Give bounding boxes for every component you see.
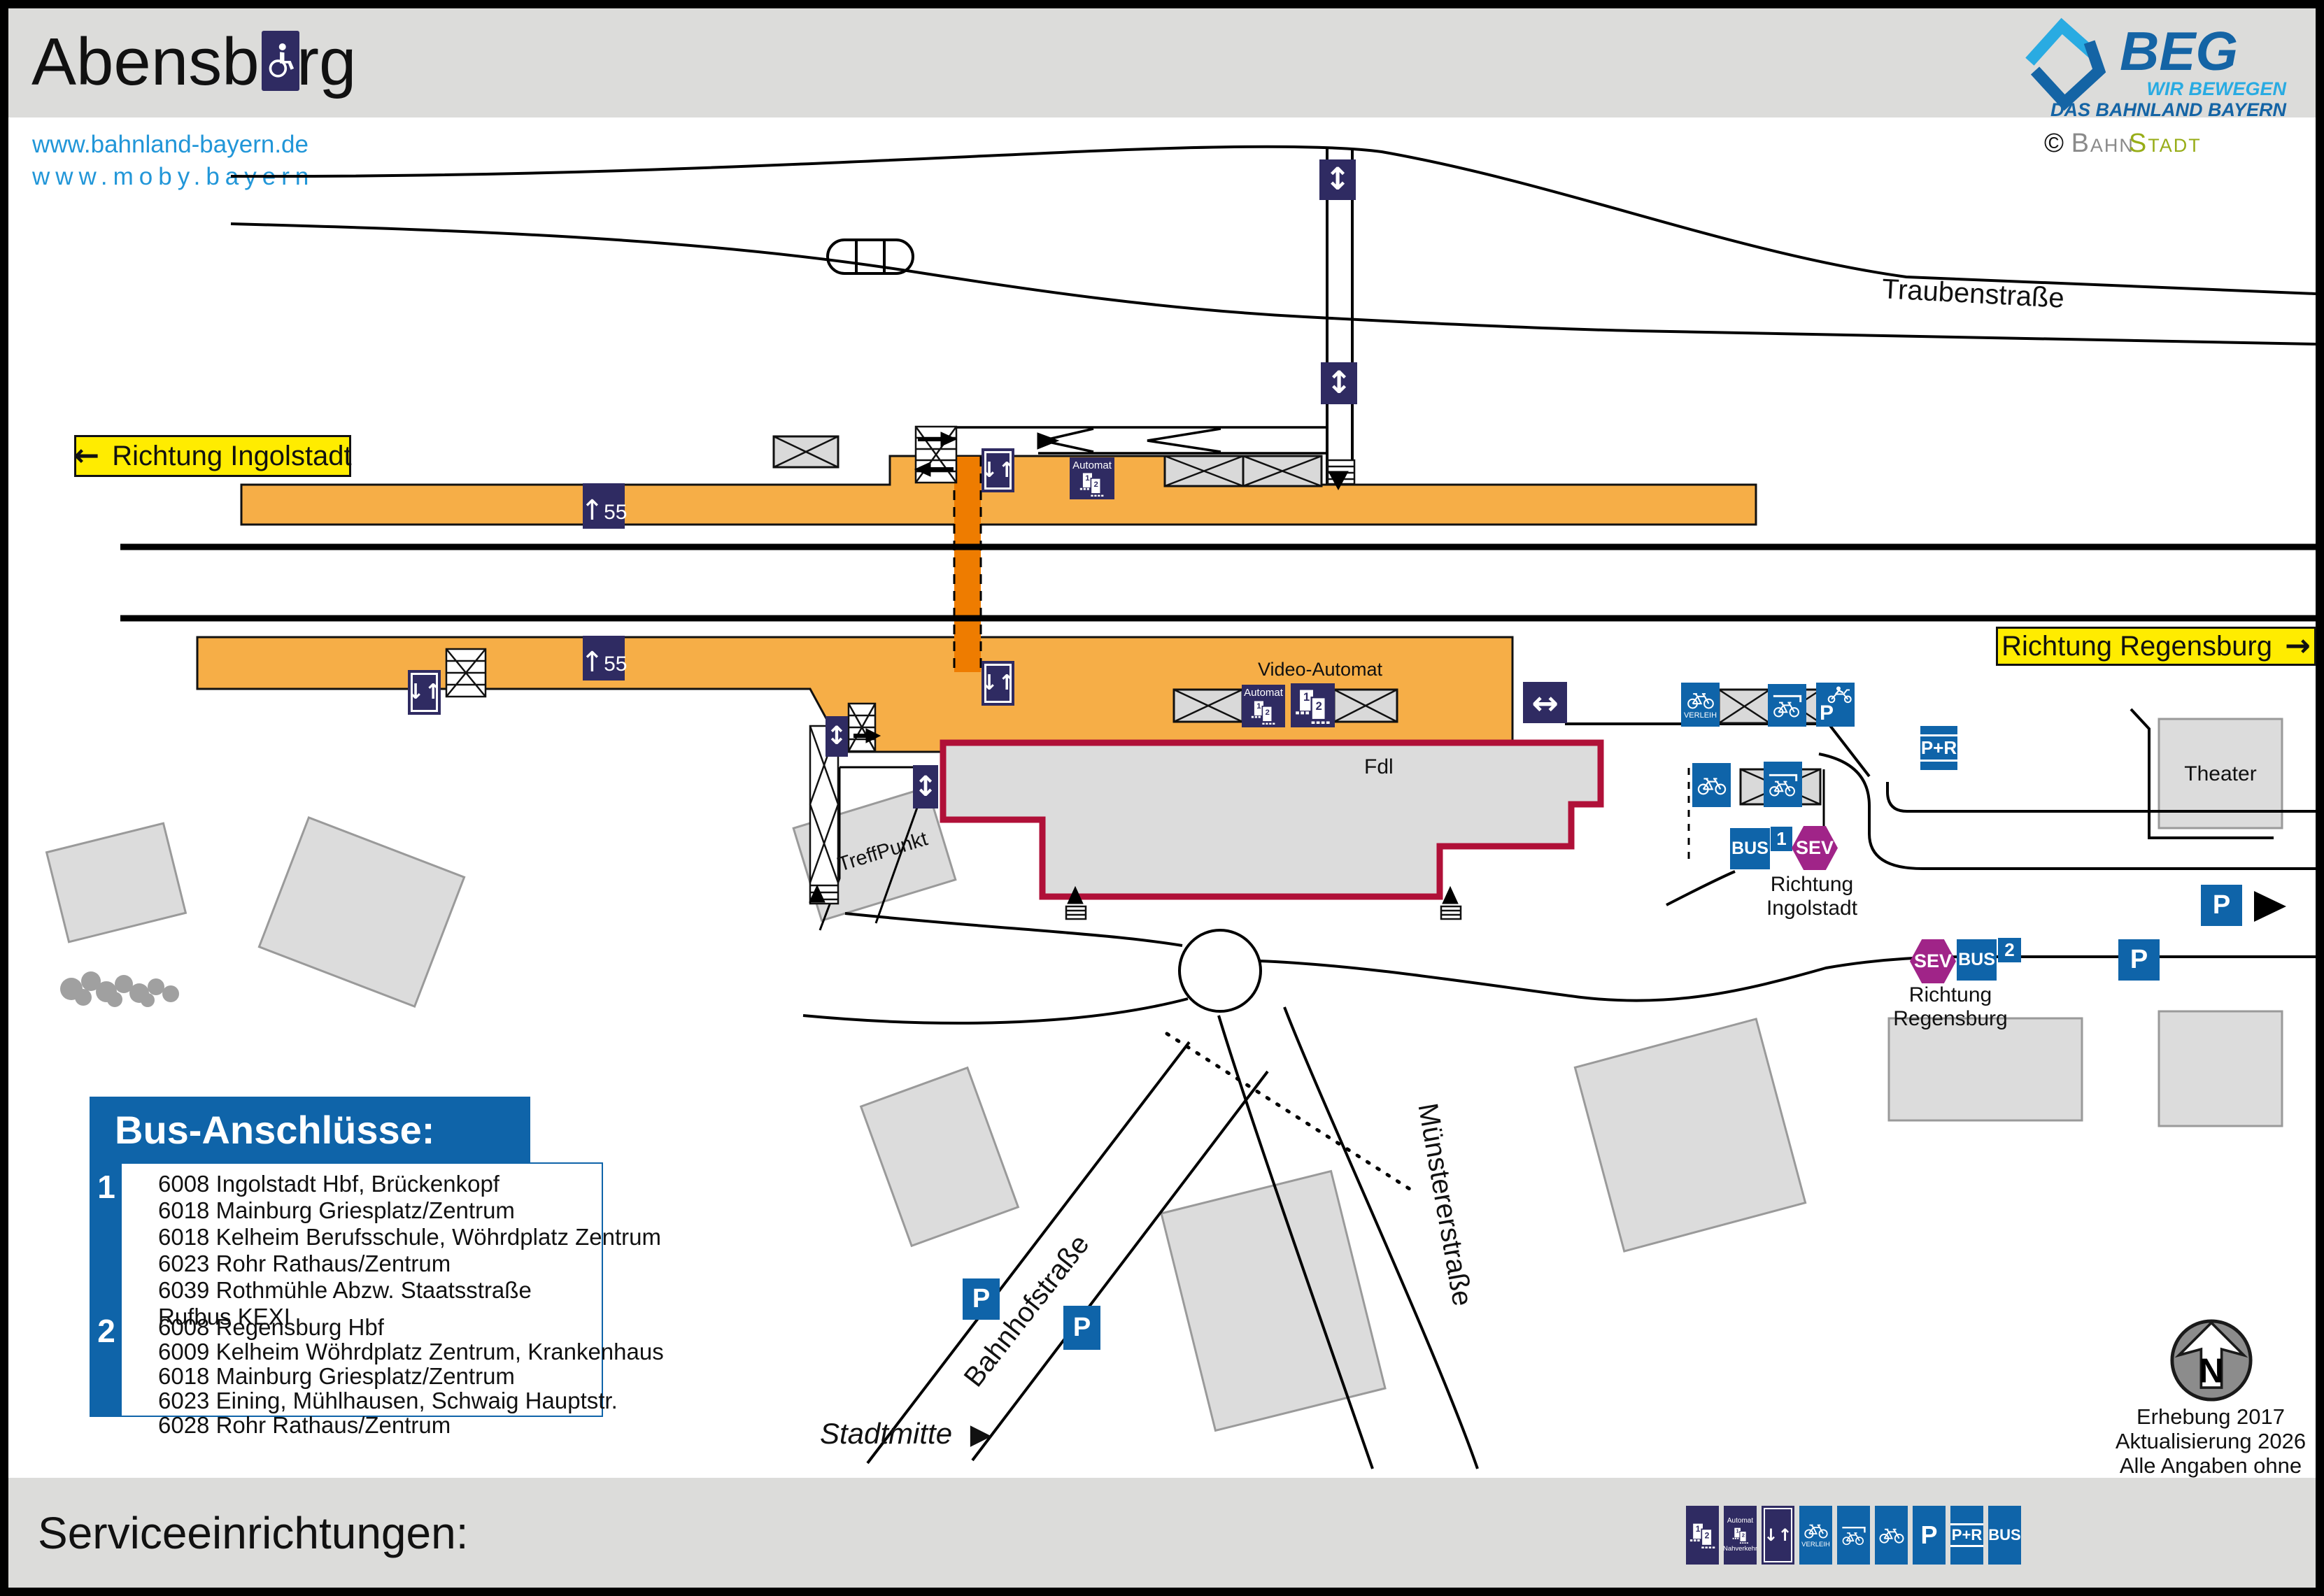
trees-icon	[60, 971, 179, 1007]
bus-line-item: 6028 Rohr Rathaus/Zentrum	[158, 1413, 664, 1437]
crossing-updown-icon: ↕	[1319, 159, 1356, 200]
p-label: P	[1820, 701, 1834, 725]
stop2-direction-label: RichtungRegensburg	[1887, 983, 2013, 1031]
covered-bike-parking-icon	[1768, 684, 1806, 727]
crossing-updown-icon: ↕	[913, 765, 938, 808]
bus-line-item: 6008 Ingolstadt Hbf, Brückenkopf	[158, 1171, 661, 1197]
parking-icon: P	[2118, 939, 2160, 981]
stadtmitte-arrow-icon: ▶	[970, 1418, 992, 1451]
stadtmitte-label: Stadtmitte ▶	[820, 1417, 992, 1451]
stop-number-2: 2	[1998, 938, 2021, 962]
crossing-updown-icon: ↕	[1321, 362, 1357, 404]
left-arrow-icon: ←	[73, 441, 99, 471]
direction-regensburg-text: Richtung Regensburg	[2001, 631, 2272, 662]
service-icons-row: Automat Nahverkehr ↓↑ VERLEIH P P+R BUS	[1686, 1506, 2021, 1565]
footer-band: Serviceeinrichtungen: Automat Nahverkehr…	[8, 1478, 2316, 1588]
bus-line-item: 6039 Rothmühle Abzw. Staatsstraße	[158, 1277, 661, 1304]
parking-icon: P	[1063, 1306, 1100, 1350]
theater-label: Theater	[2159, 762, 2282, 786]
up-arrow-icon: ↑	[581, 648, 604, 676]
elevator-icon: ↓↑	[408, 670, 441, 715]
bike-rental-icon: VERLEIH	[1799, 1506, 1832, 1565]
parking-icon: P	[2201, 885, 2242, 926]
table-stop1-number: 1	[91, 1168, 122, 1206]
platform-height-marker-1: ↑55	[583, 483, 625, 529]
note-erhebung: Erhebung 2017	[2085, 1404, 2324, 1429]
bus-line-item: 6018 Kelheim Berufsschule, Wöhrdplatz Ze…	[158, 1224, 661, 1251]
elevator-icon: ↓↑	[982, 448, 1014, 492]
video-ticket-machine-icon	[1686, 1506, 1719, 1565]
parking-icon: P	[963, 1278, 1000, 1320]
elevator-icon: ↓↑	[982, 661, 1014, 706]
underpass	[954, 457, 981, 672]
video-automat-label: Video-Automat	[1247, 659, 1394, 681]
fdl-label: Fdl	[1364, 755, 1448, 779]
bus-stop-icon: BUS	[1957, 939, 1997, 981]
map-canvas: Abensberg BEG WIR BEWEGEN DAS BAHNLAND B…	[8, 8, 2316, 1588]
bus-line-item: 6008 Regensburg Hbf	[158, 1315, 664, 1339]
bus-line-item: 6018 Mainburg Griesplatz/Zentrum	[158, 1364, 664, 1388]
covered-bike-parking-icon	[1764, 762, 1802, 807]
bus-stop-icon: BUS	[1730, 828, 1770, 869]
parking-direction-arrow-icon	[2254, 891, 2286, 922]
stop1-lines-list: 6008 Ingolstadt Hbf, Brückenkopf6018 Mai…	[158, 1171, 661, 1330]
stop2-lines-list: 6008 Regensburg Hbf6009 Kelheim Wöhrdpla…	[158, 1315, 664, 1437]
stop-number-1: 1	[1771, 827, 1792, 851]
bus-line-item: 6023 Rohr Rathaus/Zentrum	[158, 1251, 661, 1277]
platform-height-marker-2: ↑55	[583, 636, 625, 681]
bike-parking-icon	[1875, 1506, 1908, 1565]
park-and-ride-icon: P+R	[1950, 1506, 1983, 1565]
bus-connections-header: Bus-Anschlüsse:	[90, 1097, 530, 1162]
parking-icon: P	[1913, 1506, 1946, 1565]
automat-label: Automat	[1072, 460, 1112, 472]
ticket-machine-icon: Automat	[1070, 457, 1114, 499]
level-access-icon: ↔	[1523, 682, 1567, 723]
direction-ingolstadt-text: Richtung Ingolstadt	[112, 441, 351, 472]
bus-line-item: 6023 Eining, Mühlhausen, Schwaig Hauptst…	[158, 1388, 664, 1413]
up-arrow-icon: ↑	[581, 497, 604, 525]
pr-label: P+R	[1919, 734, 1959, 762]
pedestrian-dotted-path	[1167, 1034, 1410, 1189]
bus-line-item: 6009 Kelheim Wöhrdplatz Zentrum, Kranken…	[158, 1339, 664, 1364]
elevator-icon: ↓↑	[1762, 1506, 1794, 1565]
verleih-label: VERLEIH	[1684, 711, 1717, 720]
table-stop2-number: 2	[91, 1312, 122, 1350]
local-ticket-machine-icon: Automat Nahverkehr	[1724, 1506, 1757, 1565]
bike-rental-icon: VERLEIH	[1681, 683, 1720, 727]
right-arrow-icon: →	[2285, 631, 2311, 662]
covered-bike-parking-icon	[1837, 1506, 1870, 1565]
direction-label-ingolstadt: ← Richtung Ingolstadt	[74, 435, 351, 477]
video-ticket-machine-icon	[1291, 683, 1335, 727]
direction-label-regensburg: Richtung Regensburg →	[1996, 627, 2316, 666]
park-and-ride-icon: P+R	[1920, 726, 1957, 770]
automat-label: Automat	[1244, 687, 1283, 699]
stadtmitte-text: Stadtmitte	[820, 1417, 952, 1450]
compass-n: N	[2199, 1353, 2223, 1390]
platform-height-value: 55	[604, 653, 627, 676]
bus-stop-icon: BUS	[1988, 1506, 2021, 1565]
stop1-direction-label: RichtungIngolstadt	[1749, 873, 1875, 920]
station-map-page: Abensberg BEG WIR BEWEGEN DAS BAHNLAND B…	[0, 0, 2324, 1596]
note-aktualisierung: Aktualisierung 2026	[2085, 1429, 2324, 1453]
north-compass-icon: N	[2169, 1318, 2254, 1403]
bike-parking-icon	[1692, 763, 1731, 807]
motorcycle-parking-icon: P	[1816, 683, 1855, 727]
crossing-updown-icon: ↕	[826, 716, 848, 757]
bus-line-item: 6018 Mainburg Griesplatz/Zentrum	[158, 1197, 661, 1224]
platform-height-value: 55	[604, 501, 627, 525]
ticket-machine-icon: Automat	[1242, 685, 1285, 727]
fdl-building	[943, 743, 1601, 897]
bus-connections-table: 1 2 6008 Ingolstadt Hbf, Brückenkopf6018…	[90, 1162, 603, 1417]
footer-title: Serviceeinrichtungen:	[38, 1478, 468, 1588]
